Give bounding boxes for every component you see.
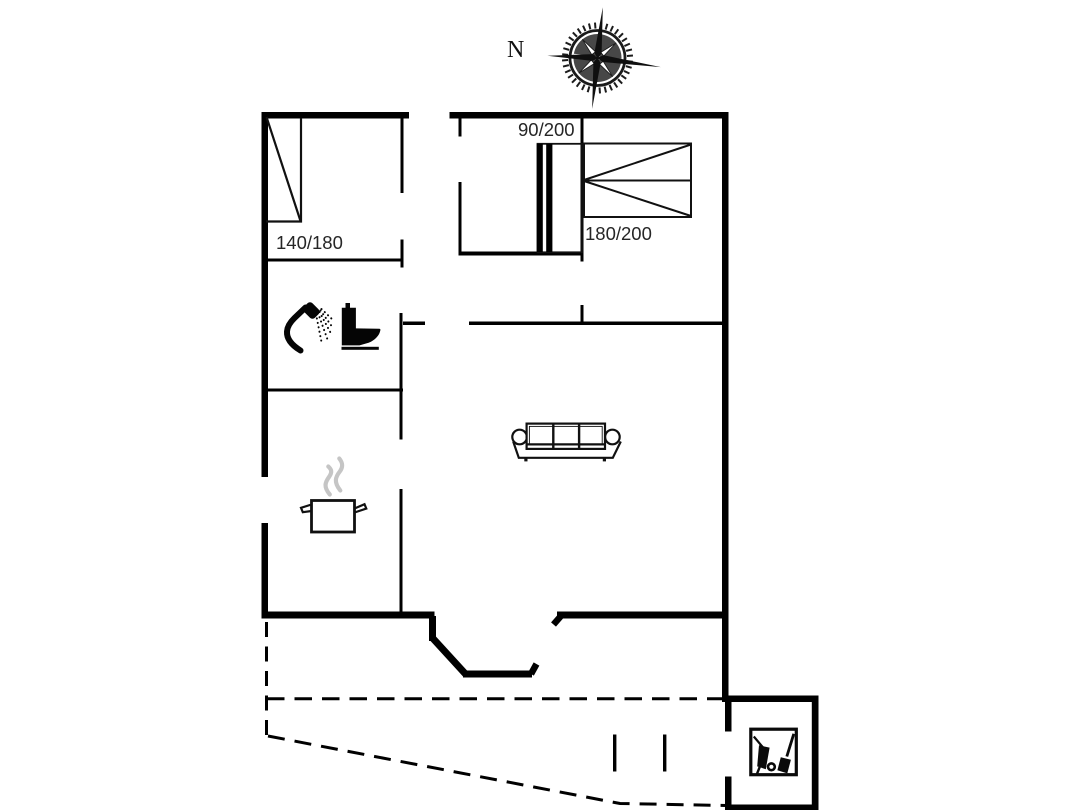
svg-text:140/180: 140/180 [276,232,343,253]
svg-text:180/200: 180/200 [585,223,652,244]
svg-text:N: N [507,37,524,63]
svg-text:90/200: 90/200 [518,119,575,140]
